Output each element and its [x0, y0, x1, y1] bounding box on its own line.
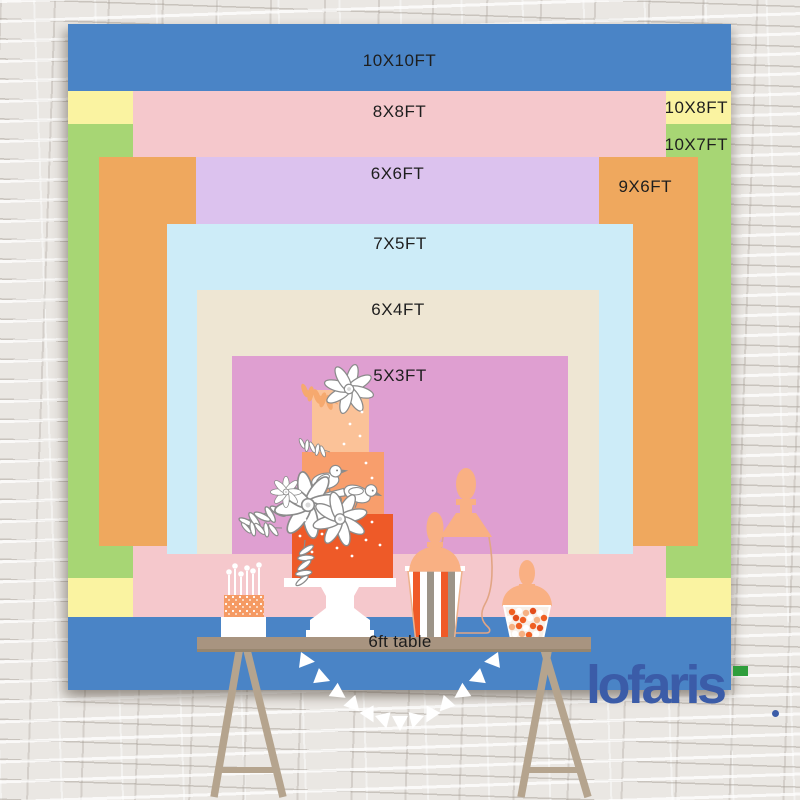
size-label-9x6ft: 9X6FT: [618, 178, 672, 195]
table-size-label: 6ft table: [320, 632, 480, 652]
size-label-7x5ft: 7X5FT: [167, 235, 633, 252]
size-label-8x8ft: 8X8FT: [133, 103, 666, 120]
size-label-10x8ft: 10X8FT: [665, 99, 728, 116]
logo-green-flag-icon: [733, 666, 748, 676]
size-label-10x10ft: 10X10FT: [68, 52, 731, 69]
size-label-6x6ft: 6X6FT: [196, 165, 599, 182]
lofaris-logo: lofaris: [586, 656, 724, 715]
logo-registered-dot-icon: [772, 710, 779, 717]
backdrop-layer-5x3ft: 5X3FT: [232, 356, 568, 554]
size-label-6x4ft: 6X4FT: [197, 301, 599, 318]
size-label-10x7ft: 10X7FT: [665, 136, 728, 153]
size-label-5x3ft: 5X3FT: [232, 367, 568, 384]
